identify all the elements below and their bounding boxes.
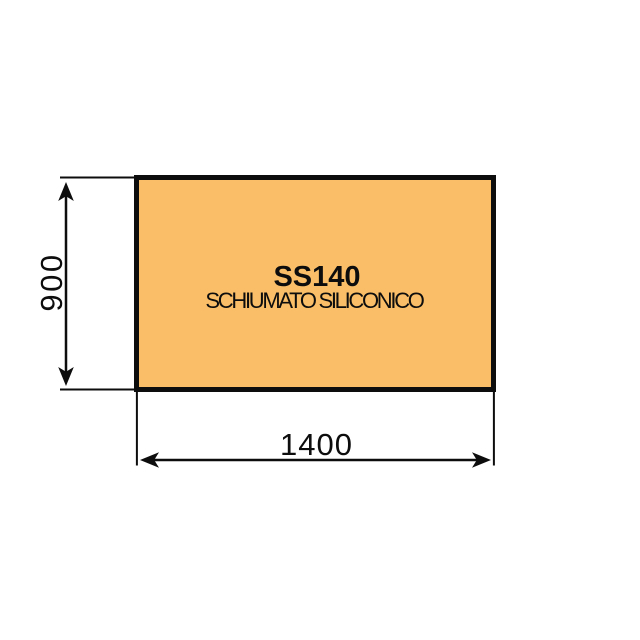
svg-text:SCHIUMATO SILICONICO: SCHIUMATO SILICONICO [205, 288, 424, 313]
svg-text:900: 900 [34, 252, 69, 311]
svg-text:1400: 1400 [280, 427, 353, 462]
